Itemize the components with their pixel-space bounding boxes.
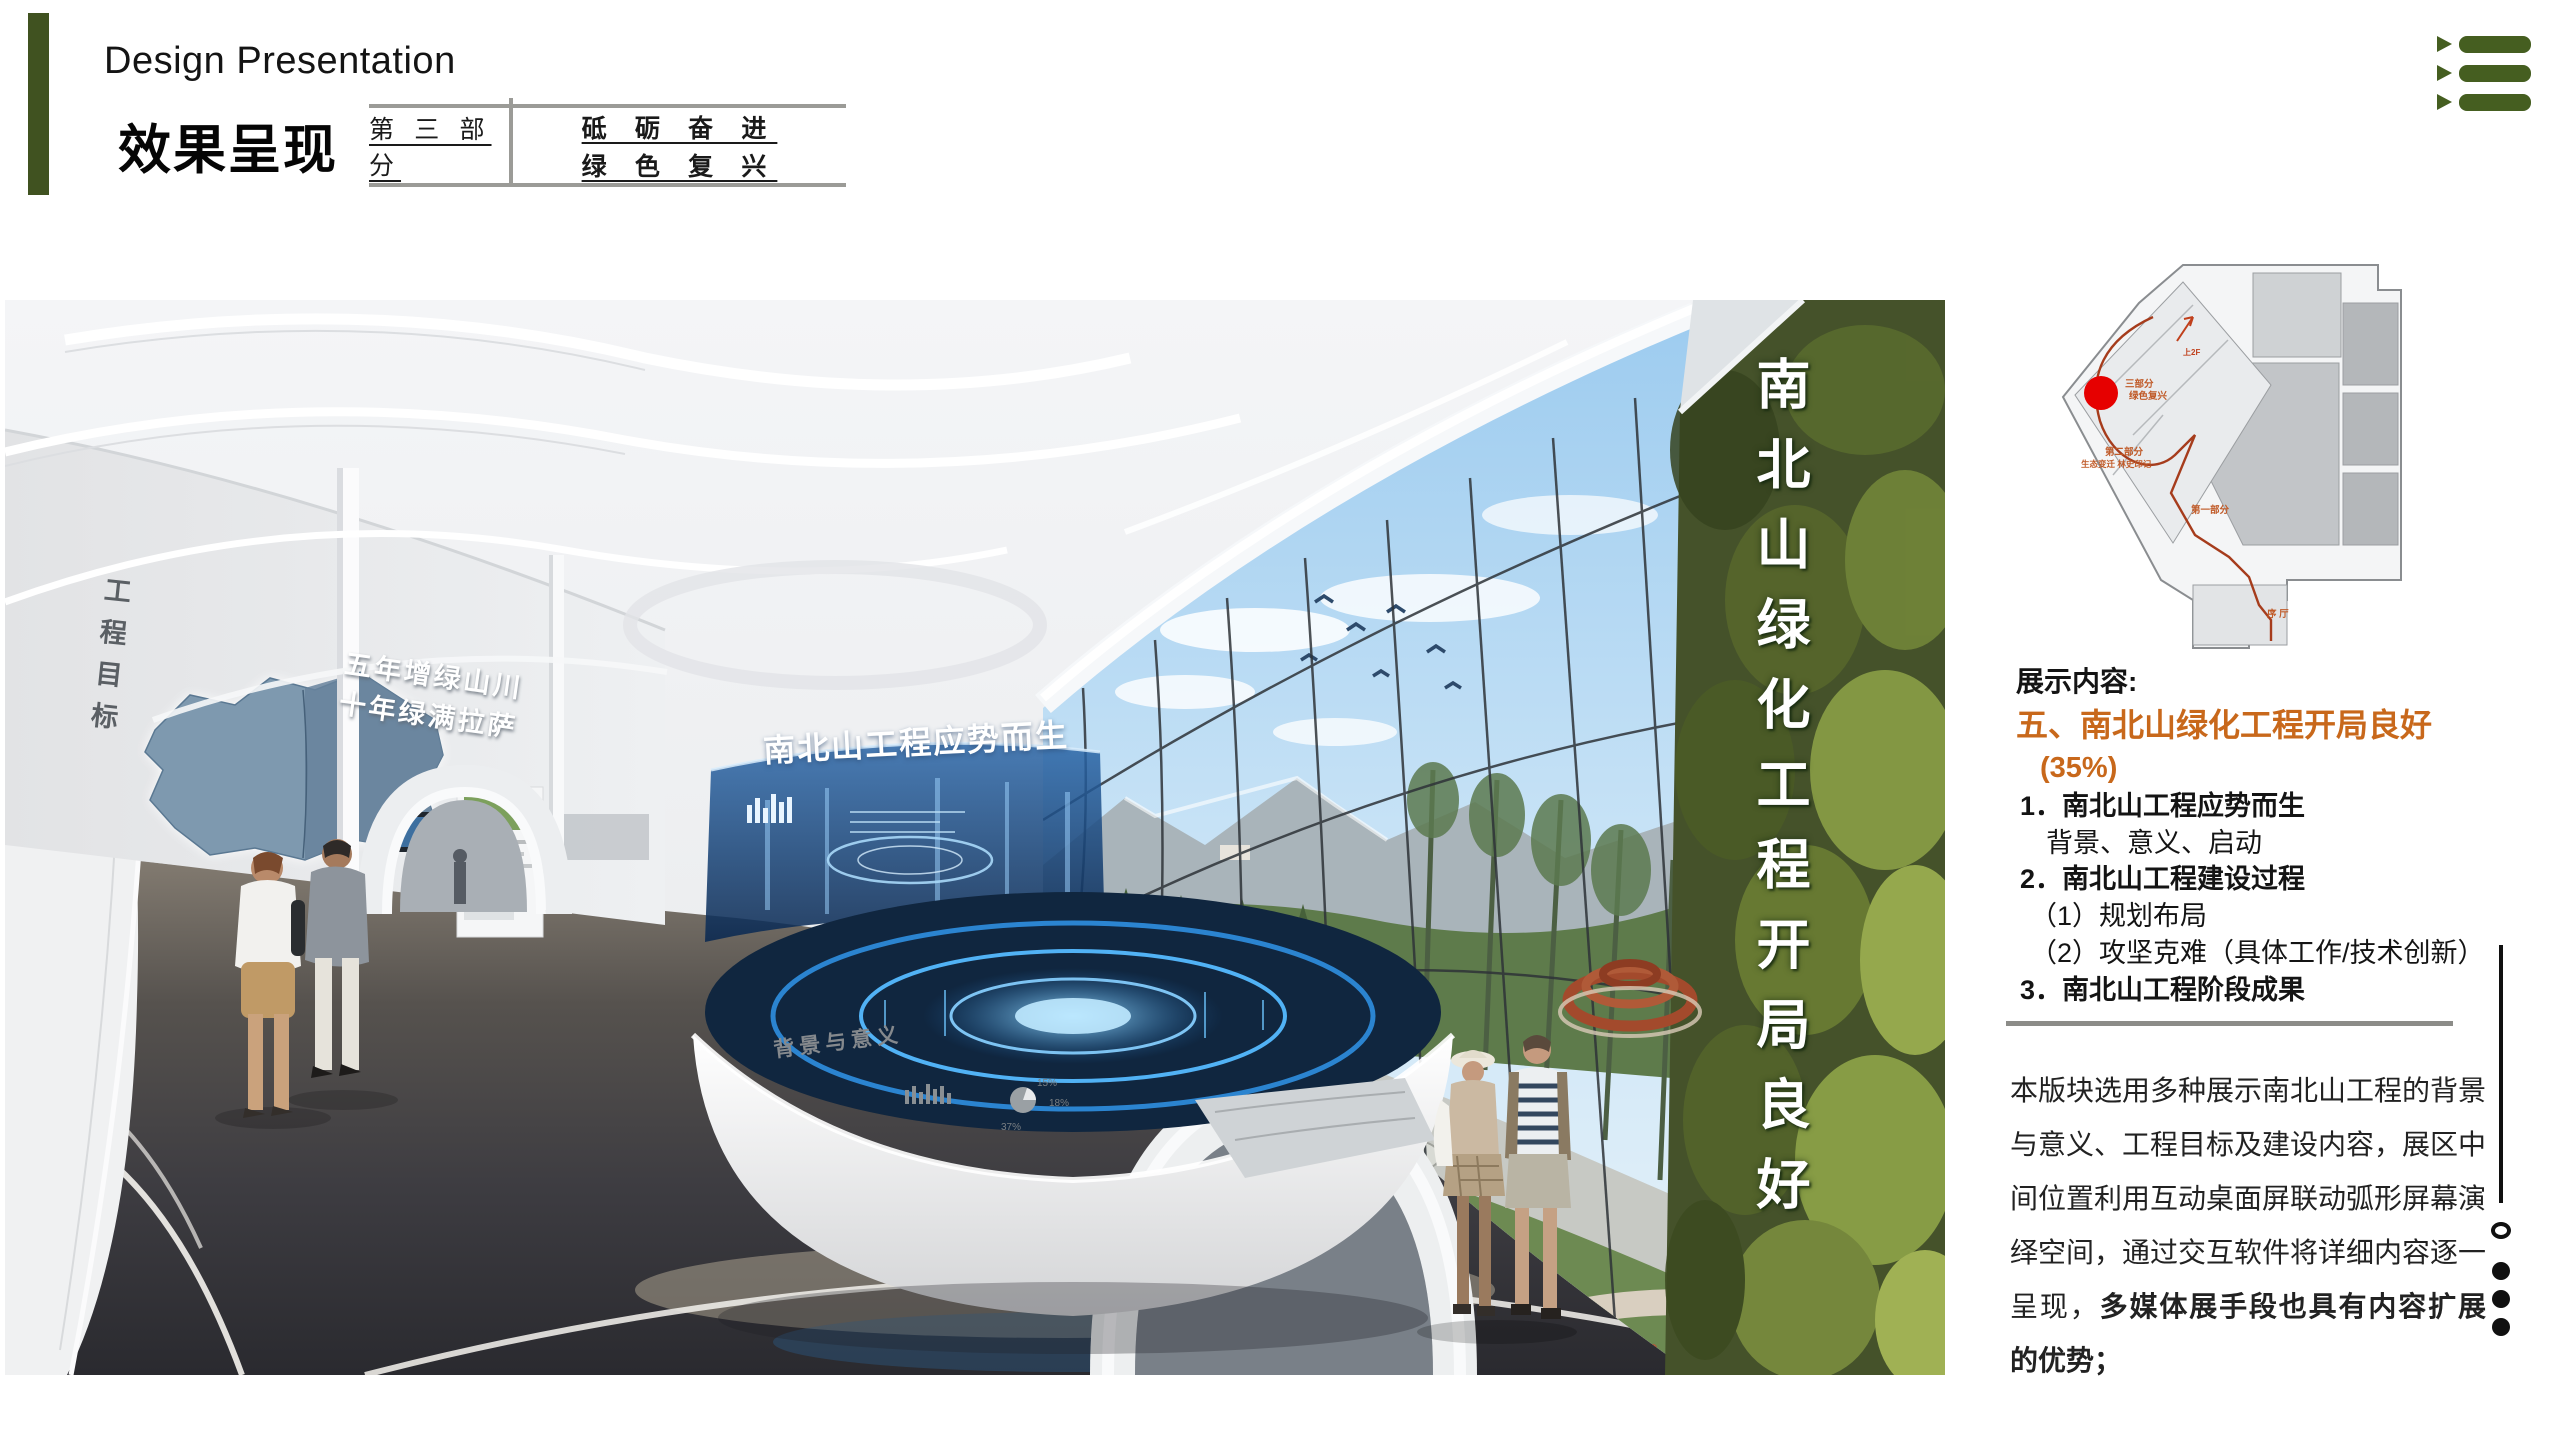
triangle-bullet-icon	[2437, 36, 2452, 52]
slide-nav-dot-3[interactable]	[2492, 1318, 2510, 1336]
section-heading: 五、南北山绿化工程开局良好	[2016, 703, 2496, 748]
list-item-2: 2．南北山工程建设过程	[2020, 861, 2496, 898]
part-label-table: 第 三 部 分 砥 砺 奋 进 绿 色 复 兴	[369, 104, 846, 187]
slide-nav-dot-1[interactable]	[2492, 1262, 2510, 1280]
pie-value-18: 18%	[1049, 1098, 1069, 1109]
pie-value-37: 37%	[1001, 1122, 1021, 1133]
menu-row-1	[2437, 36, 2532, 53]
floorplan-label-part2: 第二部分	[2105, 446, 2144, 458]
part-number-cell: 第 三 部 分	[369, 108, 509, 183]
exhibition-hall-render: 37% 18% 15%	[5, 300, 1945, 1375]
section-label: 展示内容:	[2016, 664, 2496, 703]
floorplan-label-part3: 三部分	[2125, 378, 2154, 390]
list-item-1-sub: 背景、意义、启动	[2046, 825, 2496, 861]
description-paragraph: 本版块选用多种展示南北山工程的背景与意义、工程目标及建设内容，展区中间位置利用互…	[2010, 1064, 2486, 1388]
slogan-line-2: 绿 色 复 兴	[582, 147, 778, 183]
percent-badge: (35%)	[2040, 748, 2496, 788]
list-item-3: 3．南北山工程阶段成果	[2020, 972, 2496, 1009]
slide-nav-dot-2[interactable]	[2492, 1290, 2510, 1308]
accent-bar	[28, 13, 49, 195]
render-scene: 37% 18% 15%	[5, 300, 1945, 1375]
list-item-2-sub-1: （1）规划布局	[2030, 898, 2496, 935]
menu-bar	[2459, 36, 2531, 53]
greenwall-vertical-title: 南北山绿化工程开局良好	[1739, 356, 1818, 1236]
slogan-line-1: 砥 砺 奋 进	[582, 109, 778, 145]
floorplan-label-upstairs: 上2F	[2183, 347, 2200, 357]
triangle-bullet-icon	[2437, 94, 2452, 110]
menu-bar	[2459, 94, 2531, 111]
floorplan-label-part1: 第一部分	[2191, 504, 2230, 516]
floorplan-label-part3-sub: 绿色复兴	[2129, 390, 2168, 402]
slide-title-chinese: 效果呈现	[118, 108, 338, 184]
floorplan-label-part2-sub: 生态变迁 林史印记	[2081, 459, 2152, 469]
floorplan-label-lobby: 序 厅	[2267, 608, 2289, 620]
part-number-text: 第 三 部 分	[369, 110, 509, 182]
triangle-bullet-icon	[2437, 65, 2452, 81]
display-content-list: 展示内容: 五、南北山绿化工程开局良好 (35%) 1．南北山工程应势而生 背景…	[2016, 664, 2496, 1009]
menu-bar	[2459, 65, 2531, 82]
list-item-2-sub-2: （2）攻坚克难（具体工作/技术创新）	[2030, 935, 2496, 972]
current-location-marker	[2084, 376, 2118, 410]
list-item-1: 1．南北山工程应势而生	[2020, 788, 2496, 825]
list-menu-icon[interactable]	[2437, 36, 2532, 114]
part-slogan-cell: 砥 砺 奋 进 绿 色 复 兴	[513, 108, 846, 183]
paragraph-normal-text: 本版块选用多种展示南北山工程的背景与意义、工程目标及建设内容，展区中间位置利用互…	[2010, 1075, 2486, 1322]
menu-row-2	[2437, 65, 2532, 82]
slide-nav-line	[2499, 945, 2503, 1203]
floorplan-thumbnail: 三部分 绿色复兴 第二部分 生态变迁 林史印记 第一部分 序 厅 上2F	[2043, 245, 2436, 655]
pie-value-15: 15%	[1037, 1078, 1057, 1089]
slide-nav-current-indicator[interactable]	[2491, 1222, 2511, 1239]
slide-title-english: Design Presentation	[104, 40, 456, 83]
menu-row-3	[2437, 94, 2532, 111]
presentation-slide: Design Presentation 效果呈现 第 三 部 分 砥 砺 奋 进…	[0, 0, 2560, 1440]
section-divider	[2006, 1021, 2453, 1026]
